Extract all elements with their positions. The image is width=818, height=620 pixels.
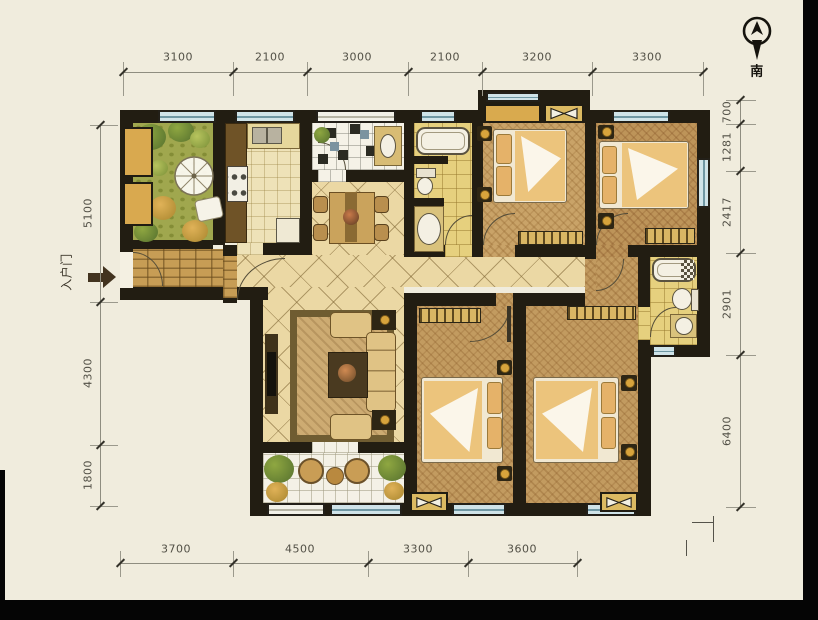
window <box>158 110 216 123</box>
wall-closet <box>544 104 584 123</box>
extension-line <box>90 125 118 126</box>
wall-segment <box>515 245 585 257</box>
table-lamp <box>500 363 510 373</box>
window <box>267 503 325 516</box>
window <box>697 158 710 208</box>
table-lamp <box>625 447 635 457</box>
wall-segment <box>263 442 312 453</box>
wall-segment <box>250 287 263 515</box>
bedroom-b-door-opening <box>596 245 628 257</box>
dimension-line-bottom <box>120 563 577 564</box>
scan-edge <box>0 600 818 620</box>
storage-cabinet <box>123 182 153 226</box>
wall-segment <box>404 123 414 257</box>
wall-segment <box>638 345 651 515</box>
table-lamp <box>480 190 490 200</box>
potted-plant <box>314 127 330 143</box>
dimension-line-left <box>100 125 101 506</box>
wall-segment <box>358 442 404 453</box>
closet-x-icon <box>549 107 579 120</box>
entry-door-label: 入户门 <box>58 253 75 291</box>
balcony-chair <box>344 458 370 484</box>
wardrobe <box>518 231 583 245</box>
wall-segment <box>638 253 650 307</box>
pillow <box>602 146 617 174</box>
floor-tile <box>330 142 339 151</box>
balcony-plant <box>266 482 288 502</box>
wall-segment <box>513 293 526 503</box>
wash-basin <box>675 317 693 335</box>
tv <box>267 352 276 396</box>
kitchen-sink <box>267 127 282 144</box>
scan-edge <box>803 0 818 620</box>
hallway <box>237 255 585 287</box>
porch-door-opening <box>223 256 237 298</box>
dim-right-4: 2901 <box>721 289 734 319</box>
dim-bottom-3: 3300 <box>403 543 433 556</box>
pillow <box>496 166 512 196</box>
coffee-table-flowers <box>338 364 356 382</box>
table-lamp <box>380 315 390 325</box>
extension-line <box>482 62 483 96</box>
pillow <box>601 382 616 414</box>
wall-closet <box>600 492 638 512</box>
dim-right-3: 2417 <box>721 197 734 227</box>
dim-left-2: 4300 <box>82 358 95 388</box>
balcony-chair <box>298 458 324 484</box>
bedroom-c-door-leaf <box>507 306 511 342</box>
dimension-line-top <box>123 72 703 73</box>
kitchen-door-opening <box>237 243 263 255</box>
closet-x-icon <box>605 496 633 509</box>
scan-edge <box>0 470 5 600</box>
kitchen-stove <box>227 166 248 202</box>
bath2-door-opening <box>638 307 650 340</box>
garden-flower-bush <box>150 196 176 220</box>
closet-x-icon <box>415 496 443 509</box>
wall-segment <box>472 123 483 245</box>
wall-segment <box>414 198 444 206</box>
extension-line <box>307 62 308 96</box>
compass-icon <box>735 14 779 62</box>
wall-segment <box>638 340 650 345</box>
toilet <box>672 288 692 310</box>
table-lamp <box>602 216 612 226</box>
pillow <box>601 417 616 449</box>
dim-top-6: 3300 <box>632 51 662 64</box>
dining-chair <box>374 196 389 213</box>
dim-top-3: 3000 <box>342 51 372 64</box>
window <box>330 503 402 516</box>
patio-umbrella <box>172 154 216 198</box>
window <box>420 110 456 123</box>
window <box>612 110 670 123</box>
register-mark <box>713 516 714 542</box>
dim-top-1: 3100 <box>163 51 193 64</box>
dimension-line-right <box>740 100 741 507</box>
dim-bottom-2: 4500 <box>285 543 315 556</box>
window <box>452 503 506 516</box>
wc-door-opening <box>318 170 346 182</box>
extension-line <box>703 62 704 96</box>
garden-flower-bush <box>182 220 208 242</box>
extension-line <box>592 62 593 96</box>
floor-plan-canvas: 入户门 南 3100 2100 3000 2100 3200 3300 5100… <box>0 0 818 620</box>
pillow <box>487 382 502 414</box>
wall-segment <box>526 293 585 306</box>
wardrobe <box>567 306 636 320</box>
pillow <box>496 134 512 164</box>
wall-segment <box>472 245 483 257</box>
wall-segment <box>414 156 448 164</box>
wall-segment <box>346 170 404 182</box>
extension-line <box>90 445 118 446</box>
dim-right-2: 1281 <box>721 132 734 162</box>
pillow <box>487 417 502 449</box>
wall-closet <box>410 492 448 512</box>
floor-tile <box>350 124 360 134</box>
bath1-door-opening <box>445 245 472 257</box>
dining-chair <box>313 224 328 241</box>
table-lamp <box>480 129 490 139</box>
wardrobe <box>419 308 481 323</box>
toilet-tank <box>691 289 699 311</box>
entry-door-opening <box>120 252 133 288</box>
balcony-door-opening <box>312 442 358 453</box>
nook-door-opening <box>585 259 596 291</box>
wc-basin <box>380 134 396 158</box>
compass-south-label: 南 <box>750 61 764 80</box>
extension-line <box>233 62 234 96</box>
bathtub <box>416 127 470 155</box>
dim-bottom-4: 3600 <box>507 543 537 556</box>
dim-left-3: 1800 <box>82 460 95 490</box>
kitchen-sink <box>252 127 267 144</box>
dining-chair <box>313 196 328 213</box>
balcony-plant <box>384 482 404 500</box>
wall-closet <box>484 104 541 123</box>
register-mark <box>686 540 687 556</box>
table-lamp <box>380 415 390 425</box>
register-mark <box>692 522 714 523</box>
dim-top-5: 3200 <box>522 51 552 64</box>
table-centerpiece <box>343 209 359 225</box>
bedroom-a-door-opening <box>483 245 515 257</box>
window <box>652 345 676 357</box>
wall-segment <box>404 293 496 306</box>
floor-tile <box>338 150 348 160</box>
floor-tile <box>360 130 369 139</box>
sofa <box>366 332 396 412</box>
table-lamp <box>500 469 510 479</box>
window <box>316 110 396 123</box>
floor-tile <box>318 154 328 164</box>
dim-right-5: 6400 <box>721 416 734 446</box>
dim-left-1: 5100 <box>82 198 95 228</box>
dining-chair <box>374 224 389 241</box>
refrigerator <box>276 218 300 243</box>
balcony-plant <box>378 455 406 481</box>
garden-shrub <box>190 130 210 148</box>
wall-segment <box>404 293 417 503</box>
wardrobe <box>645 228 695 244</box>
extension-line <box>123 62 124 96</box>
wall-segment <box>300 123 312 255</box>
pillow <box>602 176 617 204</box>
dim-right-1: 700 <box>721 101 734 124</box>
window <box>235 110 295 123</box>
wall-segment <box>585 123 596 259</box>
bedroom-c-door-opening <box>496 293 513 306</box>
entry-arrow-icon <box>103 266 116 288</box>
storage-cabinet <box>123 127 153 177</box>
extension-line <box>90 506 118 507</box>
extension-line <box>90 302 118 303</box>
table-lamp <box>602 127 612 137</box>
wall-segment <box>697 110 710 357</box>
balcony-table <box>326 467 344 485</box>
armchair <box>330 414 372 440</box>
dim-bottom-1: 3700 <box>161 543 191 556</box>
shower-drain <box>681 260 694 280</box>
dim-top-4: 2100 <box>430 51 460 64</box>
balcony-plant <box>264 455 294 483</box>
toilet <box>417 177 433 195</box>
wash-basin <box>417 213 441 245</box>
window <box>486 92 540 102</box>
extension-line <box>408 62 409 96</box>
dim-top-2: 2100 <box>255 51 285 64</box>
table-lamp <box>625 378 635 388</box>
